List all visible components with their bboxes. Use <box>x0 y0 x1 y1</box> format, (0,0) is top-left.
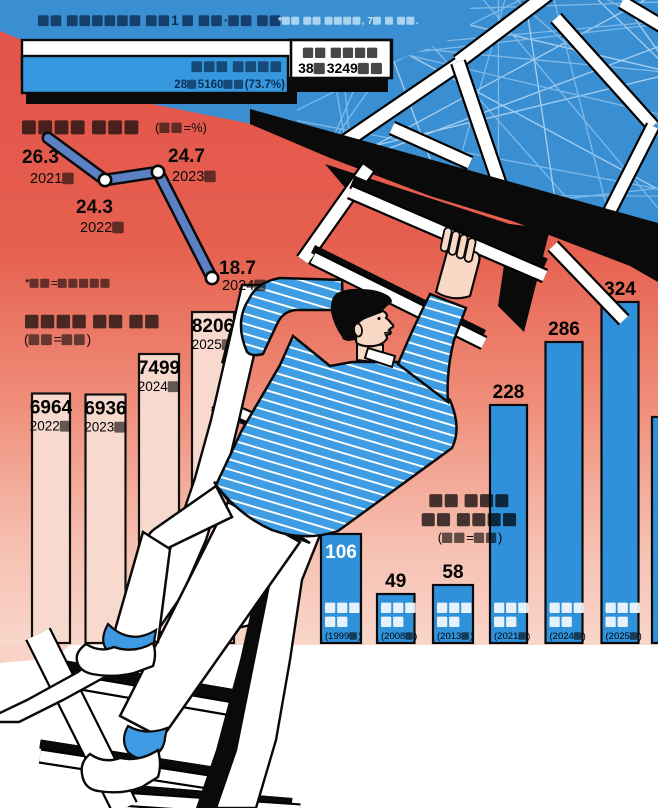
svg-text:49: 49 <box>385 571 406 592</box>
svg-text:(: ( <box>155 120 160 135</box>
svg-text:28: 28 <box>174 79 187 91</box>
svg-text:): ) <box>498 530 502 545</box>
svg-text:18.7: 18.7 <box>219 258 256 279</box>
svg-text:): ) <box>583 631 586 642</box>
svg-text:3249: 3249 <box>327 60 358 76</box>
svg-text:2023: 2023 <box>84 420 114 435</box>
svg-text:58: 58 <box>442 562 463 583</box>
svg-text:.: . <box>416 16 419 27</box>
svg-text:(2013: (2013 <box>437 631 461 642</box>
svg-text:106: 106 <box>325 542 357 563</box>
svg-text:*: * <box>25 278 30 290</box>
svg-text:2022: 2022 <box>80 220 112 236</box>
svg-text:(: ( <box>438 530 443 545</box>
svg-text:=: = <box>466 530 474 545</box>
svg-text:=: = <box>54 332 62 347</box>
svg-text:2025: 2025 <box>192 337 222 352</box>
svg-text:6964: 6964 <box>30 398 73 419</box>
svg-text:): ) <box>414 631 417 642</box>
svg-text:7499: 7499 <box>138 358 180 379</box>
svg-text:(2025: (2025 <box>606 631 630 642</box>
svg-text:26.3: 26.3 <box>22 147 59 168</box>
svg-text:): ) <box>470 631 473 642</box>
svg-text:, 7: , 7 <box>362 16 374 27</box>
svg-text:(: ( <box>24 332 29 347</box>
svg-text:1: 1 <box>171 13 179 28</box>
svg-text:8206: 8206 <box>192 316 234 337</box>
svg-text:(2024: (2024 <box>550 631 574 642</box>
svg-text:286: 286 <box>548 319 580 340</box>
svg-text:2022: 2022 <box>30 419 60 434</box>
svg-text:=: = <box>51 278 58 290</box>
svg-text:=%): =%) <box>184 120 207 135</box>
svg-text:2024: 2024 <box>222 278 254 294</box>
svg-text:(2021: (2021 <box>494 631 518 642</box>
svg-text:6936: 6936 <box>84 399 126 420</box>
svg-text:): ) <box>87 332 92 347</box>
svg-text:38: 38 <box>298 60 314 76</box>
svg-text:(1999: (1999 <box>325 631 349 642</box>
svg-text:): ) <box>527 631 530 642</box>
svg-text:5160: 5160 <box>198 79 224 91</box>
svg-text:·: · <box>224 13 229 28</box>
svg-text:): ) <box>639 631 642 642</box>
svg-text:24.3: 24.3 <box>76 197 113 218</box>
svg-text:(73.7%): (73.7%) <box>245 79 285 91</box>
svg-text:228: 228 <box>493 382 525 403</box>
svg-text:2023: 2023 <box>172 169 204 185</box>
svg-text:): ) <box>358 631 361 642</box>
svg-text:2024: 2024 <box>138 379 169 394</box>
svg-text:*: * <box>278 16 282 27</box>
svg-text:(2008: (2008 <box>381 631 405 642</box>
svg-text:24.7: 24.7 <box>168 146 205 167</box>
svg-text:2021: 2021 <box>30 171 62 187</box>
